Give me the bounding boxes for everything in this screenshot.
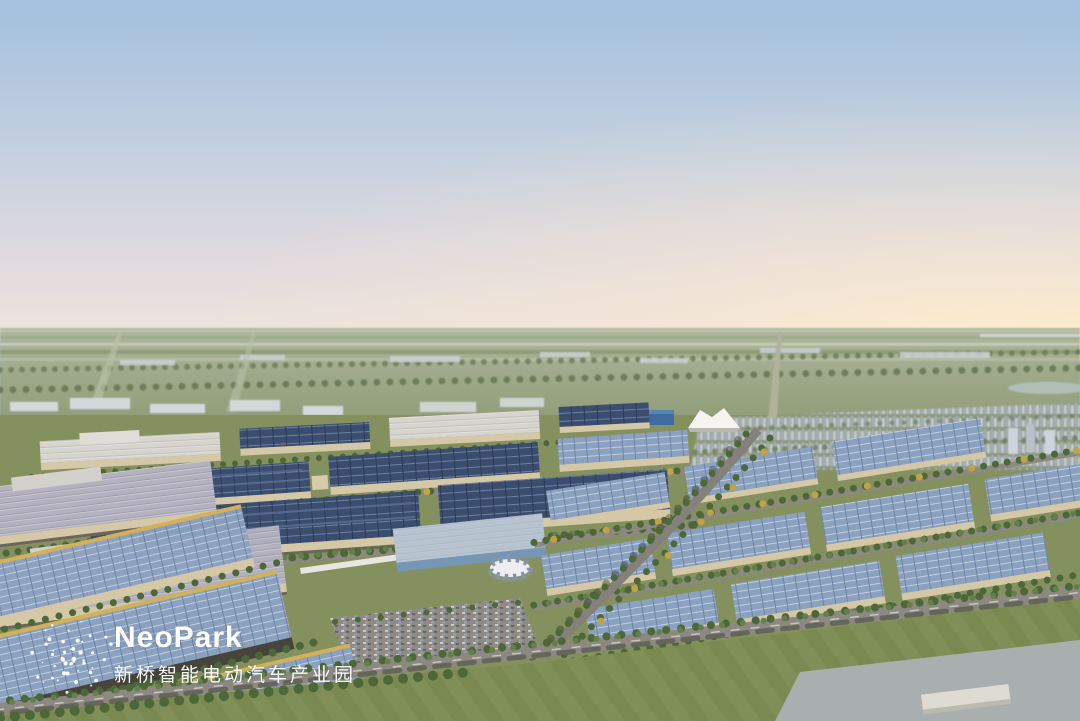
logo-text-block: NeoPark 新桥智能电动汽车产业园 <box>114 610 356 687</box>
brand-subtitle-zh: 新桥智能电动汽车产业园 <box>114 660 356 687</box>
neopark-aerial-rendering: NeoPark 新桥智能电动汽车产业园 <box>0 0 1080 721</box>
dot-burst-logo-icon <box>26 610 118 708</box>
brand-name: NeoPark <box>114 622 356 654</box>
neopark-logo: NeoPark 新桥智能电动汽车产业园 <box>26 610 356 708</box>
round-striped-building <box>490 559 530 577</box>
sky <box>0 0 1080 360</box>
sunset-glow <box>0 0 1080 360</box>
